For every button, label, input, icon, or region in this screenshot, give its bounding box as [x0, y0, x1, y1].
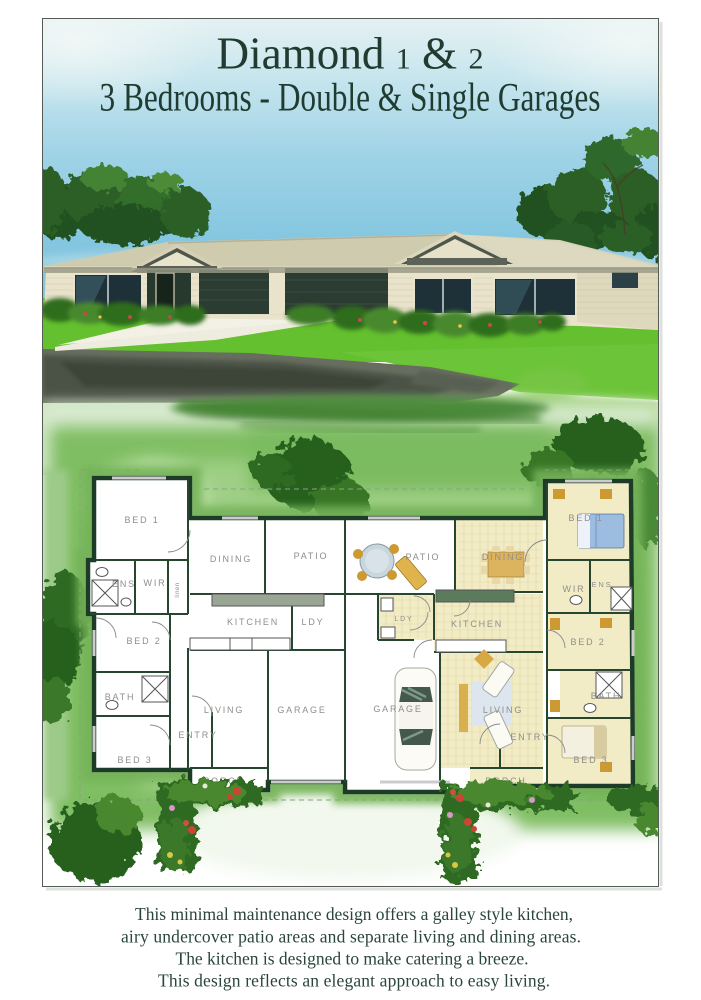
svg-text:PATIO: PATIO	[406, 552, 441, 562]
svg-text:PATIO: PATIO	[294, 551, 329, 561]
svg-text:DINING: DINING	[210, 554, 252, 564]
svg-text:KITCHEN: KITCHEN	[451, 619, 503, 629]
svg-text:airy undercover patio areas an: airy undercover patio areas and separate…	[121, 927, 581, 947]
svg-text:BATH: BATH	[105, 692, 136, 702]
svg-text:ENS: ENS	[592, 580, 613, 589]
svg-text:This design reflects an elegan: This design reflects an elegant approach…	[158, 971, 550, 991]
svg-text:BED 3: BED 3	[573, 755, 608, 765]
svg-text:BED 1: BED 1	[568, 513, 603, 523]
svg-text:WIR: WIR	[144, 578, 167, 588]
svg-text:This minimal maintenance desig: This minimal maintenance design offers a…	[135, 904, 573, 924]
svg-text:LDY: LDY	[302, 617, 325, 627]
svg-text:DINING: DINING	[482, 552, 524, 562]
svg-text:Diamond 1 & 2: Diamond 1 & 2	[217, 29, 484, 79]
svg-text:GARAGE: GARAGE	[277, 705, 326, 715]
svg-text:KITCHEN: KITCHEN	[227, 617, 279, 627]
svg-text:3 Bedrooms - Double & Single G: 3 Bedrooms - Double & Single Garages	[100, 75, 601, 120]
svg-text:LIVING: LIVING	[483, 705, 523, 715]
svg-text:BED 1: BED 1	[124, 515, 159, 525]
svg-text:BED 2: BED 2	[570, 637, 605, 647]
svg-text:The kitchen is designed to mak: The kitchen is designed to make catering…	[176, 949, 529, 969]
svg-text:ENTRY: ENTRY	[178, 730, 217, 740]
svg-text:BED 2: BED 2	[126, 636, 161, 646]
svg-text:ENS: ENS	[112, 579, 136, 589]
svg-text:BATH: BATH	[591, 691, 622, 701]
svg-text:BED 3: BED 3	[117, 755, 152, 765]
svg-text:LIVING: LIVING	[204, 705, 244, 715]
svg-text:GARAGE: GARAGE	[373, 704, 422, 714]
svg-text:ENTRY: ENTRY	[510, 732, 549, 742]
svg-text:WIR: WIR	[563, 584, 586, 594]
svg-text:linen: linen	[175, 582, 181, 597]
svg-text:LDY: LDY	[394, 616, 413, 623]
